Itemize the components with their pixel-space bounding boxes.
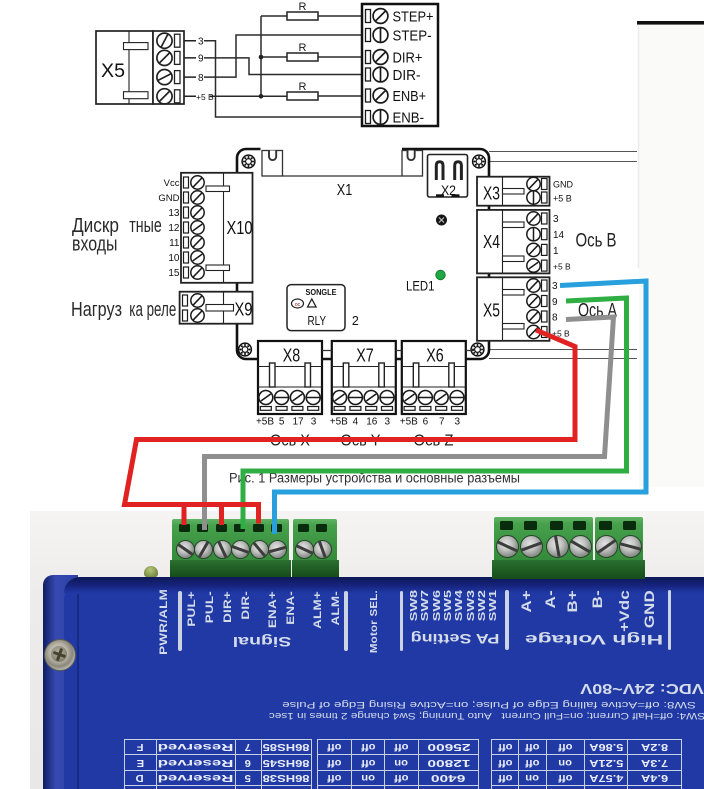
svg-text:GND: GND xyxy=(158,193,179,204)
svg-text:Нагруз: Нагруз xyxy=(71,299,122,321)
svg-text:ка реле: ка реле xyxy=(129,299,176,321)
svg-text:3: 3 xyxy=(552,281,558,292)
svg-text:16: 16 xyxy=(366,417,378,428)
svg-text:oc: oc xyxy=(295,302,301,308)
svg-text:5: 5 xyxy=(279,417,285,428)
svg-text:17: 17 xyxy=(292,417,304,428)
svg-text:+5B: +5B xyxy=(400,417,418,428)
svg-text:3: 3 xyxy=(385,417,391,428)
svg-text:X10: X10 xyxy=(227,217,253,238)
svg-text:Vcc: Vcc xyxy=(164,178,180,189)
svg-text:1: 1 xyxy=(553,246,559,257)
svg-text:LED1: LED1 xyxy=(406,278,435,294)
svg-text:X5: X5 xyxy=(483,300,500,321)
svg-text:X2: X2 xyxy=(441,182,456,198)
svg-text:ENB+: ENB+ xyxy=(393,88,427,105)
svg-text:14: 14 xyxy=(553,230,565,241)
svg-text:X7: X7 xyxy=(356,345,374,366)
svg-text:6: 6 xyxy=(423,417,429,428)
svg-text:R: R xyxy=(299,81,307,93)
svg-text:4: 4 xyxy=(353,417,359,428)
svg-text:X5: X5 xyxy=(101,60,125,82)
svg-text:3: 3 xyxy=(455,417,461,428)
svg-text:R: R xyxy=(299,1,307,13)
svg-text:X8: X8 xyxy=(283,345,301,366)
svg-text:3: 3 xyxy=(553,214,559,225)
svg-text:9: 9 xyxy=(552,297,558,308)
svg-text:DIR-: DIR- xyxy=(393,67,421,84)
svg-text:Ось B: Ось B xyxy=(576,231,617,252)
svg-text:10: 10 xyxy=(168,253,180,264)
svg-text:8: 8 xyxy=(198,73,204,84)
svg-text:+5B: +5B xyxy=(256,417,274,428)
svg-text:13: 13 xyxy=(168,208,180,219)
svg-text:STEP-: STEP- xyxy=(393,27,432,44)
svg-text:9: 9 xyxy=(198,54,204,65)
svg-text:+5B: +5B xyxy=(330,417,348,428)
svg-text:12: 12 xyxy=(168,223,180,234)
svg-text:7: 7 xyxy=(439,417,445,428)
svg-text:8: 8 xyxy=(552,313,558,324)
svg-text:X3: X3 xyxy=(483,183,500,204)
svg-text:R: R xyxy=(299,42,307,54)
svg-text:входы: входы xyxy=(72,234,118,256)
svg-text:11: 11 xyxy=(169,238,180,249)
svg-text:2: 2 xyxy=(352,314,359,328)
svg-text:+5 B: +5 B xyxy=(553,262,571,272)
svg-text:3: 3 xyxy=(311,417,317,428)
svg-text:тные: тные xyxy=(129,215,162,237)
svg-text:RLY: RLY xyxy=(308,314,327,328)
svg-text:15: 15 xyxy=(168,268,180,279)
svg-text:DIR+: DIR+ xyxy=(393,49,423,66)
svg-text:3: 3 xyxy=(198,37,204,48)
svg-text:X6: X6 xyxy=(426,345,444,366)
svg-text:STEP+: STEP+ xyxy=(393,8,434,25)
svg-text:ENB-: ENB- xyxy=(393,109,425,126)
svg-text:X4: X4 xyxy=(483,231,500,252)
svg-text:X1: X1 xyxy=(337,182,353,199)
svg-text:+5 B: +5 B xyxy=(553,194,572,204)
svg-text:+5 B: +5 B xyxy=(196,92,214,102)
svg-text:GND: GND xyxy=(553,180,574,190)
svg-text:X9: X9 xyxy=(235,299,253,320)
svg-text:SONGLE: SONGLE xyxy=(306,288,338,297)
